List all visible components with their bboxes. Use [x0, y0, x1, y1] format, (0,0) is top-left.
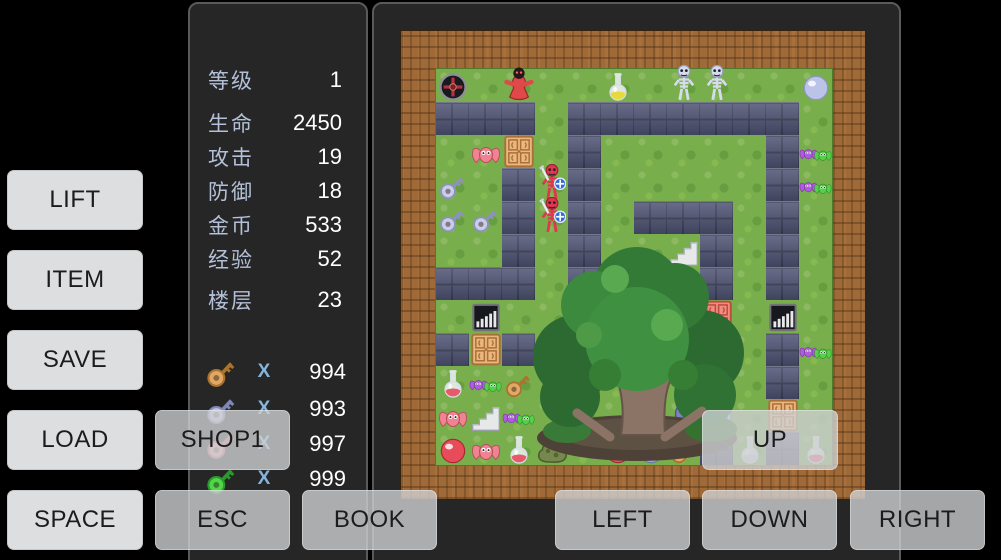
stat-row-exp: 经验 52: [208, 244, 342, 274]
tile-blue-knight-icon: [667, 399, 700, 432]
tile-wall: [601, 102, 634, 135]
up-button[interactable]: UP: [702, 410, 838, 470]
stat-value-attack: 19: [318, 144, 342, 170]
stat-value-level: 1: [330, 67, 342, 93]
right-button[interactable]: RIGHT: [850, 490, 985, 550]
tile-wall: [502, 201, 535, 234]
tile-wall: [766, 168, 799, 201]
tile-red-bat-icon: [469, 135, 502, 168]
tile-red-skeleton-icon: [535, 201, 568, 234]
save-button[interactable]: SAVE: [7, 330, 143, 390]
tile-white-key-icon: [436, 168, 469, 201]
down-button[interactable]: DOWN: [702, 490, 837, 550]
tile-wall: [568, 234, 601, 267]
stat-row-floor: 楼层 23: [208, 285, 342, 315]
tile-red-flask-icon: [502, 432, 535, 465]
tile-wall: [502, 102, 535, 135]
tile-wall: [766, 102, 799, 135]
tile-wall: [766, 366, 799, 399]
left-button[interactable]: LEFT: [555, 490, 690, 550]
tile-bat-pair-icon: [799, 135, 832, 168]
tile-wall: [766, 201, 799, 234]
tile-wall: [436, 267, 469, 300]
red-key-count: 997: [286, 431, 346, 457]
tile-wall: [469, 102, 502, 135]
stat-label-gold: 金币: [208, 210, 254, 240]
esc-button[interactable]: ESC: [155, 490, 290, 550]
tile-rock-icon: [535, 432, 568, 465]
multiply-symbol: X: [242, 468, 286, 490]
stat-label-attack: 攻击: [208, 142, 254, 172]
tile-wall: [502, 333, 535, 366]
blue-key-count: 993: [286, 396, 346, 422]
tile-wall: [766, 234, 799, 267]
tile-wall: [568, 135, 601, 168]
stat-label-level: 等级: [208, 65, 254, 95]
stat-label-exp: 经验: [208, 244, 254, 274]
green-key-count: 999: [286, 466, 346, 492]
tile-wall: [436, 333, 469, 366]
stat-value-exp: 52: [318, 246, 342, 272]
tile-purple-orb-icon: [799, 69, 832, 102]
tile-grating-icon: [766, 300, 799, 333]
tile-tan-key-icon: [667, 432, 700, 465]
tile-red-orb-icon: [601, 432, 634, 465]
stat-row-attack: 攻击 19: [208, 142, 342, 172]
tile-wall: [634, 102, 667, 135]
stat-value-gold: 533: [305, 212, 342, 238]
stat-label-defense: 防御: [208, 176, 254, 206]
stat-value-defense: 18: [318, 178, 342, 204]
tile-bat-pair-icon: [502, 399, 535, 432]
tile-wall: [502, 234, 535, 267]
tile-red-bat-icon: [469, 432, 502, 465]
tile-wall: [733, 102, 766, 135]
tile-wall: [469, 267, 502, 300]
stat-row-hp: 生命 2450: [208, 108, 342, 138]
tile-wall: [766, 333, 799, 366]
tile-door-red-icon: [700, 300, 733, 333]
shop1-button[interactable]: SHOP1: [155, 410, 290, 470]
stat-label-floor: 楼层: [208, 285, 254, 315]
tile-grating-icon: [469, 300, 502, 333]
tile-wall: [667, 102, 700, 135]
tile-stairs-icon: [469, 399, 502, 432]
game-screen: 等级 1 生命 2450 攻击 19 防御 18 金币 533 经验 52 楼层…: [0, 0, 1001, 560]
tile-skeleton-icon: [700, 69, 733, 102]
stat-label-hp: 生命: [208, 108, 254, 138]
tile-white-key-icon: [469, 201, 502, 234]
yellow-key-icon: [204, 355, 242, 389]
load-button[interactable]: LOAD: [7, 410, 143, 470]
tile-wall: [667, 201, 700, 234]
tile-blue-orb-icon: [634, 432, 667, 465]
multiply-symbol: X: [242, 361, 286, 383]
tile-dark-orb-icon: [436, 69, 469, 102]
lift-button[interactable]: LIFT: [7, 170, 143, 230]
key-row-yellow: X 994: [204, 354, 346, 390]
yellow-key-count: 994: [286, 359, 346, 385]
tile-wall: [502, 168, 535, 201]
tile-wall: [766, 135, 799, 168]
game-map: [436, 69, 832, 465]
tile-red-bat-icon: [436, 399, 469, 432]
tile-bat-pair-icon: [799, 168, 832, 201]
stat-row-level: 等级 1: [208, 65, 342, 95]
tile-door-orange-icon: [469, 333, 502, 366]
tile-door-orange-icon: [502, 135, 535, 168]
tile-tan-key-icon: [502, 366, 535, 399]
stat-row-gold: 金币 533: [208, 210, 342, 240]
tile-wall: [568, 168, 601, 201]
tile-wall: [568, 102, 601, 135]
stat-value-floor: 23: [318, 287, 342, 313]
tile-bat-pair-icon: [799, 333, 832, 366]
tile-wall: [634, 201, 667, 234]
tile-skeleton-icon: [667, 69, 700, 102]
tile-red-orb-icon: [436, 432, 469, 465]
tile-red-ghost-icon: [502, 69, 535, 102]
tile-wall: [700, 234, 733, 267]
tile-stairs-icon: [667, 234, 700, 267]
tile-wall: [568, 201, 601, 234]
tile-bat-pair-icon: [469, 366, 502, 399]
item-button[interactable]: ITEM: [7, 250, 143, 310]
tile-wall: [568, 267, 601, 300]
tile-yellow-flask-icon: [601, 69, 634, 102]
tile-wall: [766, 267, 799, 300]
stat-row-defense: 防御 18: [208, 176, 342, 206]
tile-wall: [700, 267, 733, 300]
book-button[interactable]: BOOK: [302, 490, 437, 550]
tile-wall: [700, 102, 733, 135]
tile-rock-icon: [535, 333, 568, 366]
tile-red-flask-icon: [436, 366, 469, 399]
stat-value-hp: 2450: [293, 110, 342, 136]
tile-wall: [436, 102, 469, 135]
tile-wall: [502, 267, 535, 300]
tile-wall: [700, 201, 733, 234]
stats-panel: 等级 1 生命 2450 攻击 19 防御 18 金币 533 经验 52 楼层…: [188, 2, 368, 560]
tile-white-key-icon: [436, 201, 469, 234]
space-button[interactable]: SPACE: [7, 490, 143, 550]
